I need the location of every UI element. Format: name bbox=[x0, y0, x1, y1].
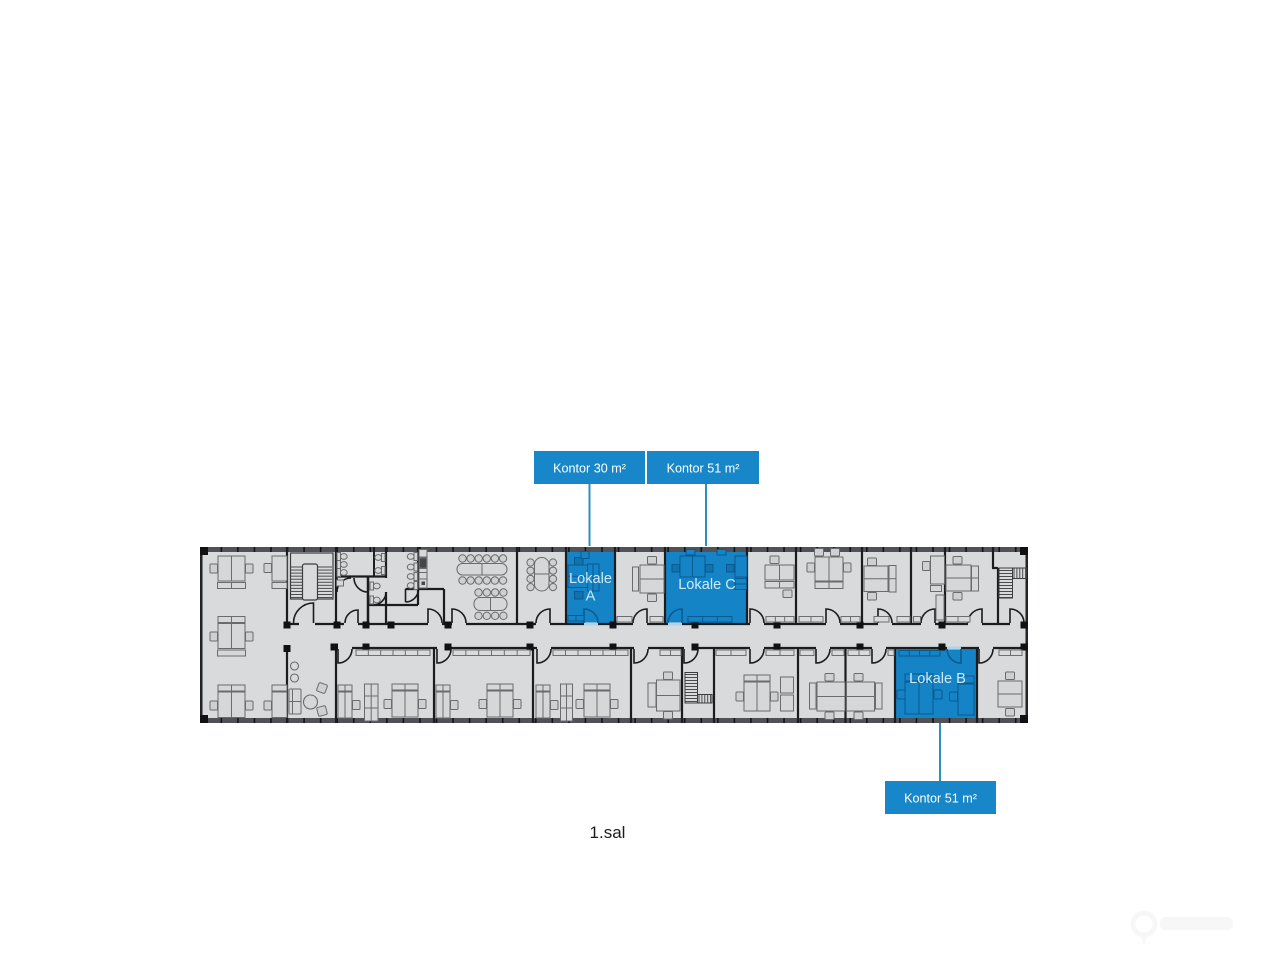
svg-text:A: A bbox=[586, 589, 596, 605]
svg-text:1.sal: 1.sal bbox=[590, 823, 626, 842]
svg-text:Kontor 51 m²: Kontor 51 m² bbox=[904, 792, 977, 806]
svg-text:Lokale: Lokale bbox=[569, 571, 612, 587]
svg-text:Kontor 51 m²: Kontor 51 m² bbox=[667, 462, 740, 476]
svg-text:Lokale B: Lokale B bbox=[909, 671, 966, 687]
svg-text:Kontor 30 m²: Kontor 30 m² bbox=[553, 462, 626, 476]
svg-text:Lokale C: Lokale C bbox=[678, 577, 736, 593]
